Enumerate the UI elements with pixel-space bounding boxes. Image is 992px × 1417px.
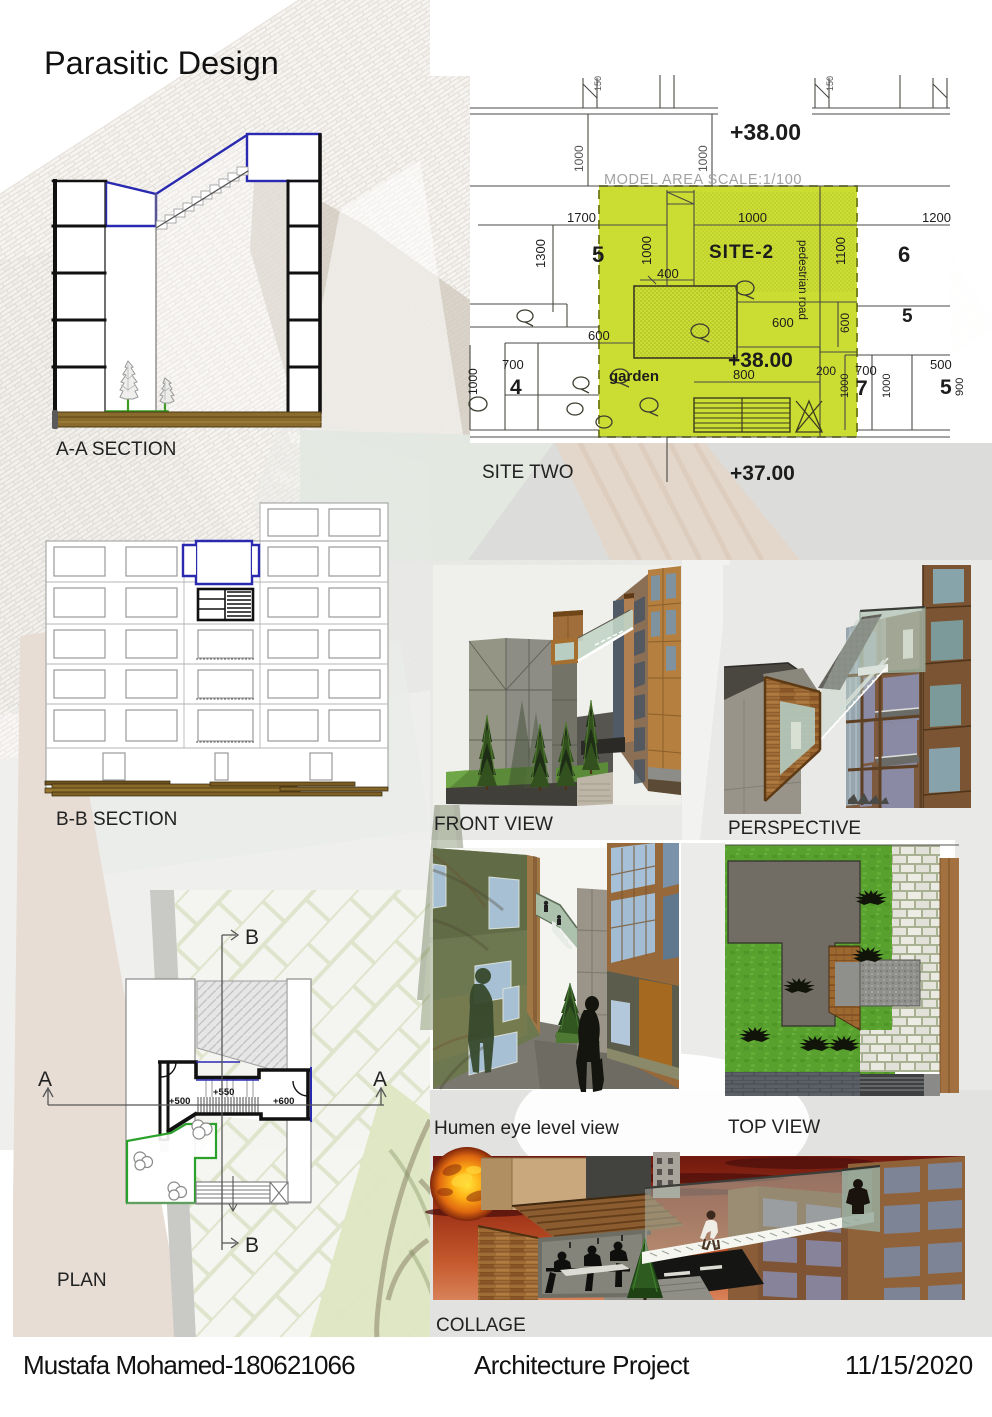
- svg-text:Parasitic Design: Parasitic Design: [44, 45, 279, 81]
- svg-text:Humen eye level view: Humen eye level view: [434, 1118, 619, 1139]
- svg-text:4: 4: [510, 376, 522, 399]
- svg-text:1000: 1000: [572, 145, 586, 172]
- svg-text:600: 600: [588, 328, 610, 343]
- svg-text:600: 600: [772, 315, 794, 330]
- svg-text:500: 500: [930, 357, 952, 372]
- svg-text:1200: 1200: [922, 210, 951, 225]
- svg-text:Architecture Project: Architecture Project: [474, 1350, 690, 1380]
- svg-text:B: B: [245, 1234, 259, 1257]
- svg-text:1000: 1000: [839, 374, 851, 398]
- svg-text:1000: 1000: [466, 368, 480, 395]
- svg-text:1000: 1000: [738, 210, 767, 225]
- svg-text:COLLAGE: COLLAGE: [436, 1315, 526, 1336]
- svg-text:800: 800: [733, 367, 755, 382]
- svg-text:B-B SECTION: B-B SECTION: [56, 809, 177, 830]
- svg-text:700: 700: [855, 363, 877, 378]
- svg-text:1100: 1100: [833, 237, 848, 265]
- svg-text:+37.00: +37.00: [730, 462, 795, 485]
- svg-text:11/15/2020: 11/15/2020: [845, 1350, 973, 1380]
- svg-text:150: 150: [593, 76, 603, 91]
- svg-text:MODEL AREA SCALE:1/100: MODEL AREA SCALE:1/100: [604, 172, 802, 188]
- svg-text:200: 200: [816, 364, 836, 378]
- svg-text:1000: 1000: [881, 374, 893, 398]
- svg-text:A: A: [38, 1068, 52, 1091]
- svg-text:PLAN: PLAN: [57, 1270, 107, 1291]
- svg-text:5: 5: [940, 376, 952, 399]
- svg-text:+550: +550: [213, 1087, 234, 1098]
- svg-text:5: 5: [592, 242, 604, 267]
- svg-text:400: 400: [657, 266, 679, 281]
- svg-text:PERSPECTIVE: PERSPECTIVE: [728, 818, 861, 839]
- svg-text:900: 900: [954, 378, 966, 396]
- svg-text:1000: 1000: [696, 145, 710, 172]
- svg-text:A: A: [373, 1068, 387, 1091]
- svg-text:700: 700: [502, 357, 524, 372]
- svg-text:1000: 1000: [639, 236, 654, 265]
- svg-text:FRONT VIEW: FRONT VIEW: [434, 814, 553, 835]
- svg-text:150: 150: [825, 76, 835, 91]
- svg-text:1300: 1300: [533, 239, 548, 268]
- svg-text:B: B: [245, 926, 259, 949]
- svg-text:SITE TWO: SITE TWO: [482, 462, 573, 483]
- svg-text:1700: 1700: [567, 210, 596, 225]
- svg-text:pedestrian road: pedestrian road: [796, 240, 808, 320]
- svg-text:garden: garden: [609, 368, 659, 385]
- svg-text:600: 600: [838, 313, 852, 333]
- svg-text:TOP VIEW: TOP VIEW: [728, 1117, 820, 1138]
- svg-text:7: 7: [856, 377, 868, 400]
- svg-text:A-A SECTION: A-A SECTION: [56, 439, 176, 460]
- svg-text:6: 6: [898, 242, 910, 267]
- svg-text:SITE-2: SITE-2: [709, 242, 774, 263]
- svg-text:+38.00: +38.00: [730, 119, 801, 145]
- svg-text:5: 5: [902, 306, 913, 327]
- svg-text:Mustafa Mohamed-180621066: Mustafa Mohamed-180621066: [23, 1350, 355, 1380]
